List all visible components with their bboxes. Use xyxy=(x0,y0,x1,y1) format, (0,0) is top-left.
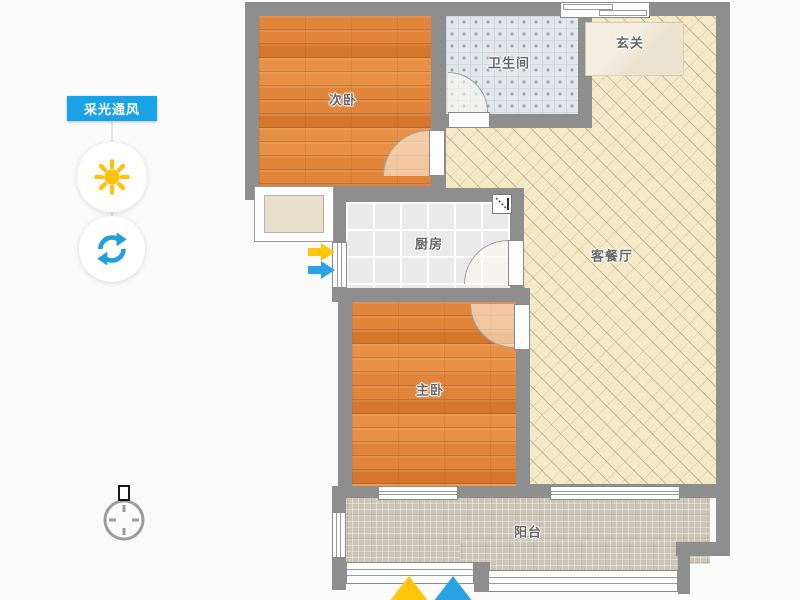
compass xyxy=(102,498,146,542)
label-entry: 玄关 xyxy=(616,33,644,52)
balcony-notch-wall-h xyxy=(676,542,730,556)
balcony-notch-wall-v xyxy=(678,556,690,594)
label-balcony: 阳台 xyxy=(514,522,542,541)
refresh-button[interactable] xyxy=(79,216,145,282)
floorplan-canvas: 次卧 卫生间 玄关 客餐厅 厨房 主卧 阳台 采光通风 xyxy=(0,0,800,600)
balcony-floor-extension xyxy=(460,540,678,572)
balcony-window-bottom-right xyxy=(488,570,678,592)
entry-door xyxy=(560,2,650,18)
secondary-bedroom-door xyxy=(429,130,445,176)
living-room-window xyxy=(550,486,680,500)
wind-arrow-bottom xyxy=(430,576,476,600)
sun-icon xyxy=(93,158,131,196)
label-master-bedroom: 主卧 xyxy=(416,380,444,399)
wind-arrow xyxy=(308,261,336,284)
small-door-icon xyxy=(492,194,512,214)
entry-door-panel xyxy=(599,10,647,16)
bay-window-sill xyxy=(264,195,324,233)
sunlight-arrow-bottom xyxy=(386,576,432,600)
balcony-window-left xyxy=(332,512,346,558)
label-secondary-bedroom: 次卧 xyxy=(329,90,357,109)
bay-window xyxy=(254,186,334,242)
bathroom-door xyxy=(448,112,490,128)
compass-icon xyxy=(102,498,146,542)
label-living-dining: 客餐厅 xyxy=(591,246,633,265)
lighting-ventilation-tab[interactable]: 采光通风 xyxy=(67,96,157,121)
master-bedroom-door xyxy=(514,304,530,350)
label-bathroom: 卫生间 xyxy=(488,53,530,72)
kitchen-door xyxy=(508,240,524,286)
balcony-wall-right xyxy=(716,486,730,548)
compass-north-marker xyxy=(118,485,130,501)
sun-button[interactable] xyxy=(77,142,147,212)
refresh-icon xyxy=(95,232,129,266)
small-door-icon-glyph xyxy=(493,195,511,213)
label-kitchen: 厨房 xyxy=(415,234,443,253)
master-bedroom-window xyxy=(378,486,458,500)
